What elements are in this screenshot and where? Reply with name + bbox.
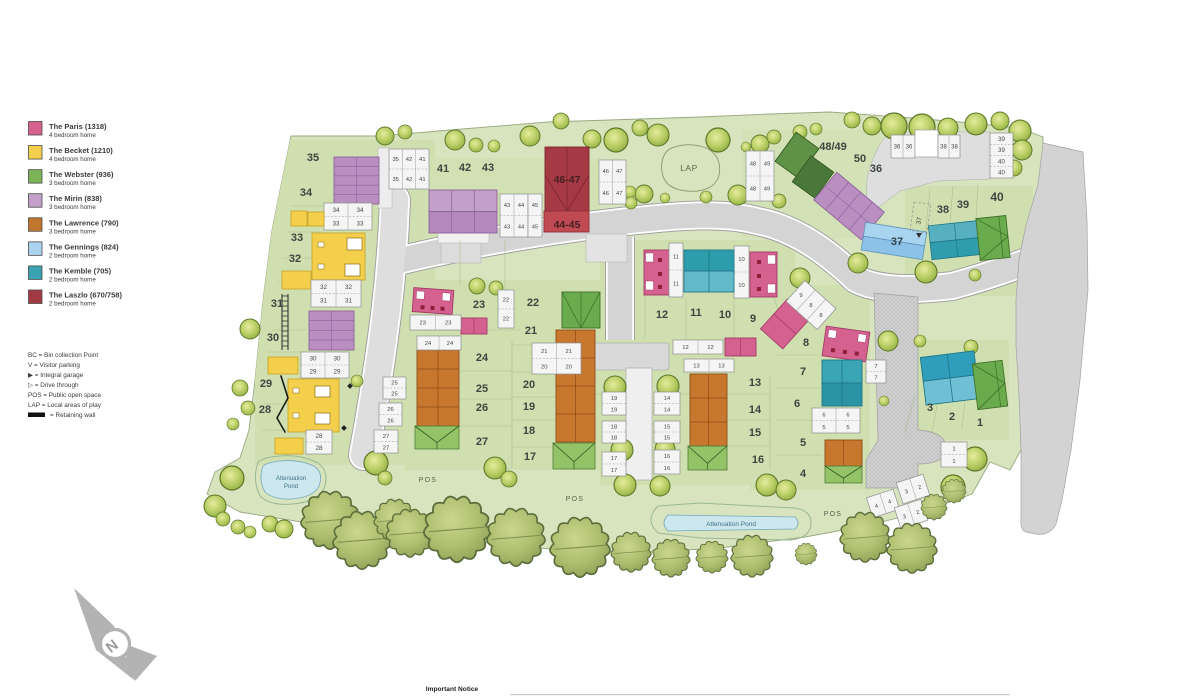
svg-text:BC = Bin collection Point: BC = Bin collection Point xyxy=(28,352,98,359)
svg-text:44-45: 44-45 xyxy=(554,219,581,231)
svg-text:44: 44 xyxy=(518,224,525,230)
svg-text:5: 5 xyxy=(846,425,849,431)
svg-text:5: 5 xyxy=(822,425,825,431)
svg-text:31: 31 xyxy=(271,298,283,310)
svg-text:10: 10 xyxy=(738,283,744,289)
svg-text:42: 42 xyxy=(406,177,412,183)
svg-text:9: 9 xyxy=(750,313,756,325)
svg-text:22: 22 xyxy=(503,298,509,304)
svg-text:Attenuation Pond: Attenuation Pond xyxy=(706,521,756,528)
svg-text:18: 18 xyxy=(611,436,617,442)
svg-text:45: 45 xyxy=(532,203,538,209)
svg-text:9: 9 xyxy=(799,293,802,299)
svg-text:36: 36 xyxy=(894,145,901,151)
svg-text:27: 27 xyxy=(383,445,389,451)
svg-text:Attenuation: Attenuation xyxy=(276,476,306,482)
svg-text:50: 50 xyxy=(854,153,866,165)
svg-text:12: 12 xyxy=(656,309,668,321)
svg-text:19: 19 xyxy=(611,407,617,413)
svg-text:The Laszlo (670/758): The Laszlo (670/758) xyxy=(49,290,122,299)
svg-text:31: 31 xyxy=(345,297,353,304)
svg-text:35: 35 xyxy=(392,177,398,183)
svg-text:20: 20 xyxy=(566,364,572,370)
svg-text:7: 7 xyxy=(874,375,877,381)
svg-text:38: 38 xyxy=(940,145,947,151)
svg-text:34: 34 xyxy=(300,187,313,199)
svg-text:48: 48 xyxy=(750,187,756,193)
svg-text:37: 37 xyxy=(891,236,903,248)
svg-text:7: 7 xyxy=(874,364,877,370)
svg-text:40: 40 xyxy=(998,170,1005,177)
svg-text:20: 20 xyxy=(523,379,535,391)
svg-text:▷ = Drive through: ▷ = Drive through xyxy=(28,382,79,389)
svg-text:39: 39 xyxy=(998,136,1005,143)
svg-text:22: 22 xyxy=(503,317,509,323)
svg-text:18: 18 xyxy=(611,425,617,431)
svg-text:The Becket (1210): The Becket (1210) xyxy=(49,146,113,155)
svg-text:35: 35 xyxy=(392,157,398,163)
svg-text:20: 20 xyxy=(541,364,547,370)
svg-text:15: 15 xyxy=(664,436,670,442)
svg-text:POS: POS xyxy=(824,511,842,518)
svg-text:1: 1 xyxy=(952,446,955,452)
svg-text:13: 13 xyxy=(749,377,761,389)
svg-text:33: 33 xyxy=(332,220,340,227)
svg-text:2 bedroom home: 2 bedroom home xyxy=(49,276,96,283)
svg-text:10: 10 xyxy=(738,257,744,263)
svg-text:13: 13 xyxy=(718,364,724,370)
svg-text:26: 26 xyxy=(387,407,393,413)
svg-text:48: 48 xyxy=(750,162,756,168)
svg-text:6: 6 xyxy=(846,412,849,418)
svg-text:3: 3 xyxy=(927,402,933,414)
svg-text:▶ = Integral garage: ▶ = Integral garage xyxy=(28,372,84,379)
svg-text:32: 32 xyxy=(320,284,328,291)
svg-text:49: 49 xyxy=(764,162,770,168)
svg-text:36: 36 xyxy=(906,145,913,151)
svg-text:17: 17 xyxy=(611,468,617,474)
svg-text:18: 18 xyxy=(523,425,535,437)
svg-text:2 bedroom home: 2 bedroom home xyxy=(49,300,96,307)
svg-text:11: 11 xyxy=(673,282,679,288)
svg-text:10: 10 xyxy=(719,309,731,321)
svg-text:1: 1 xyxy=(952,459,955,465)
svg-text:11: 11 xyxy=(690,307,702,319)
svg-text:32: 32 xyxy=(345,284,353,291)
svg-text:12: 12 xyxy=(682,345,688,351)
svg-text:5: 5 xyxy=(800,437,806,449)
svg-text:25: 25 xyxy=(391,381,397,387)
svg-text:47: 47 xyxy=(616,169,622,175)
svg-text:39: 39 xyxy=(957,199,969,211)
svg-text:29: 29 xyxy=(333,369,341,376)
svg-text:43: 43 xyxy=(482,162,494,174)
svg-text:17: 17 xyxy=(611,456,617,462)
svg-text:LAP = Local areas of play: LAP = Local areas of play xyxy=(28,402,102,409)
svg-text:33: 33 xyxy=(291,232,303,244)
svg-text:40: 40 xyxy=(990,190,1004,204)
svg-text:30: 30 xyxy=(333,356,341,363)
svg-text:44: 44 xyxy=(518,203,525,209)
svg-text:43: 43 xyxy=(504,224,510,230)
svg-text:4 bedroom home: 4 bedroom home xyxy=(49,156,96,163)
svg-text:Important Notice: Important Notice xyxy=(426,686,479,693)
svg-text:27: 27 xyxy=(476,436,488,448)
svg-text:36: 36 xyxy=(870,163,882,175)
svg-text:11: 11 xyxy=(673,255,679,261)
svg-text:31: 31 xyxy=(320,297,328,304)
svg-text:16: 16 xyxy=(752,454,764,466)
svg-text:26: 26 xyxy=(476,402,488,414)
svg-text:47: 47 xyxy=(616,191,622,197)
svg-text:26: 26 xyxy=(387,418,393,424)
svg-text:41: 41 xyxy=(437,163,449,175)
svg-text:2: 2 xyxy=(949,411,955,423)
svg-text:48/49: 48/49 xyxy=(819,141,847,153)
svg-text:39: 39 xyxy=(998,147,1005,154)
svg-text:24: 24 xyxy=(447,341,454,347)
svg-text:Pond: Pond xyxy=(284,484,298,490)
svg-text:28: 28 xyxy=(259,404,271,416)
svg-text:19: 19 xyxy=(611,396,617,402)
svg-text:The Lawrence (790): The Lawrence (790) xyxy=(49,218,119,227)
svg-text:21: 21 xyxy=(541,349,547,355)
svg-text:33: 33 xyxy=(356,220,364,227)
svg-text:= Retaining wall: = Retaining wall xyxy=(50,412,95,419)
svg-text:34: 34 xyxy=(356,207,364,214)
svg-text:1: 1 xyxy=(977,417,983,429)
svg-text:30: 30 xyxy=(267,332,279,344)
svg-text:POS: POS xyxy=(566,496,584,503)
svg-text:3 bedroom home: 3 bedroom home xyxy=(49,228,96,235)
svg-text:7: 7 xyxy=(800,366,806,378)
svg-text:LAP: LAP xyxy=(680,163,698,173)
svg-text:POS: POS xyxy=(419,477,437,484)
svg-text:6: 6 xyxy=(794,398,800,410)
svg-text:28: 28 xyxy=(315,445,323,452)
svg-text:V = Visitor parking: V = Visitor parking xyxy=(28,362,80,369)
svg-text:The Mirin (838): The Mirin (838) xyxy=(49,194,102,203)
svg-text:38: 38 xyxy=(951,145,958,151)
svg-text:8: 8 xyxy=(819,313,822,319)
svg-text:22: 22 xyxy=(527,297,539,309)
svg-text:8: 8 xyxy=(803,337,809,349)
svg-text:The Kemble (705): The Kemble (705) xyxy=(49,266,112,275)
svg-text:42: 42 xyxy=(406,157,412,163)
svg-text:14: 14 xyxy=(664,396,671,402)
svg-text:30: 30 xyxy=(309,356,317,363)
svg-text:The Gennings (824): The Gennings (824) xyxy=(49,242,119,251)
svg-text:14: 14 xyxy=(749,404,762,416)
svg-text:29: 29 xyxy=(260,378,272,390)
svg-text:21: 21 xyxy=(525,325,537,337)
svg-text:46: 46 xyxy=(603,169,609,175)
svg-text:25: 25 xyxy=(391,392,397,398)
svg-text:27: 27 xyxy=(383,434,389,440)
svg-text:49: 49 xyxy=(764,187,770,193)
svg-text:32: 32 xyxy=(289,253,301,265)
svg-text:12: 12 xyxy=(707,345,713,351)
svg-text:POS = Public open space: POS = Public open space xyxy=(28,392,101,399)
svg-text:8: 8 xyxy=(809,303,812,309)
svg-text:46-47: 46-47 xyxy=(554,174,581,186)
svg-text:6: 6 xyxy=(822,412,825,418)
svg-text:21: 21 xyxy=(566,349,572,355)
svg-text:46: 46 xyxy=(603,191,609,197)
svg-text:14: 14 xyxy=(664,407,671,413)
svg-text:41: 41 xyxy=(419,157,425,163)
svg-text:42: 42 xyxy=(459,162,471,174)
svg-text:3 bedroom home: 3 bedroom home xyxy=(49,180,96,187)
svg-text:15: 15 xyxy=(664,425,670,431)
svg-text:40: 40 xyxy=(998,158,1005,165)
svg-text:34: 34 xyxy=(332,207,340,214)
svg-text:3 bedroom home: 3 bedroom home xyxy=(49,204,96,211)
svg-text:29: 29 xyxy=(309,369,317,376)
svg-text:The Paris (1318): The Paris (1318) xyxy=(49,122,107,131)
svg-text:13: 13 xyxy=(693,364,699,370)
svg-text:24: 24 xyxy=(476,352,489,364)
svg-text:41: 41 xyxy=(419,177,425,183)
svg-text:16: 16 xyxy=(664,466,670,472)
svg-text:23: 23 xyxy=(445,321,451,327)
svg-text:4 bedroom home: 4 bedroom home xyxy=(49,132,96,139)
svg-text:43: 43 xyxy=(504,203,510,209)
svg-text:35: 35 xyxy=(307,152,319,164)
svg-text:4: 4 xyxy=(800,468,807,480)
svg-text:19: 19 xyxy=(523,401,535,413)
svg-text:17: 17 xyxy=(524,451,536,463)
svg-text:The Webster (936): The Webster (936) xyxy=(49,170,114,179)
svg-text:23: 23 xyxy=(420,321,426,327)
svg-text:25: 25 xyxy=(476,383,488,395)
svg-text:15: 15 xyxy=(749,427,761,439)
svg-text:28: 28 xyxy=(315,433,323,440)
svg-text:2 bedroom home: 2 bedroom home xyxy=(49,252,96,259)
svg-text:23: 23 xyxy=(473,299,485,311)
svg-text:38: 38 xyxy=(937,204,949,216)
svg-text:24: 24 xyxy=(425,341,432,347)
svg-text:16: 16 xyxy=(664,454,670,460)
svg-text:45: 45 xyxy=(532,224,538,230)
